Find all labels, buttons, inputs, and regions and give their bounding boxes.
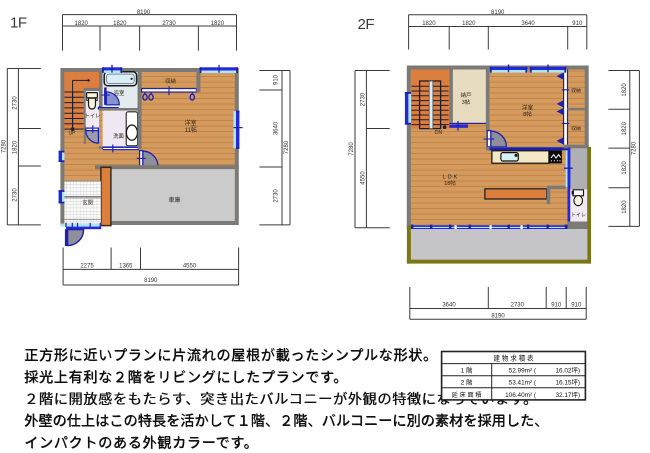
svg-text:16.15坪): 16.15坪) xyxy=(555,379,580,387)
svg-text:910: 910 xyxy=(551,303,562,309)
svg-text:2730: 2730 xyxy=(13,96,19,110)
svg-text:延 床 面 積: 延 床 面 積 xyxy=(452,391,482,399)
svg-text:洋室: 洋室 xyxy=(184,119,196,127)
svg-text:1820: 1820 xyxy=(622,200,628,214)
svg-text:1820: 1820 xyxy=(113,21,127,27)
svg-text:1820: 1820 xyxy=(75,21,89,27)
svg-text:2 階: 2 階 xyxy=(461,378,473,387)
svg-text:11帖: 11帖 xyxy=(185,126,197,134)
svg-text:インパクトのある外観カラーです。: インパクトのある外観カラーです。 xyxy=(24,435,258,452)
svg-text:106.40m² (: 106.40m² ( xyxy=(505,392,537,399)
svg-text:1820: 1820 xyxy=(622,83,628,97)
svg-text:8190: 8190 xyxy=(137,10,151,16)
svg-text:建 物 求 積 表: 建 物 求 積 表 xyxy=(493,354,534,363)
svg-text:収納: 収納 xyxy=(571,125,581,132)
svg-text:外壁の仕上はこの特長を活かして１階、２階、バルコニーに別の素: 外壁の仕上はこの特長を活かして１階、２階、バルコニーに別の素材を採用した、 xyxy=(24,414,548,430)
svg-text:1820: 1820 xyxy=(422,21,436,27)
svg-text:7280: 7280 xyxy=(631,141,637,155)
svg-text:DN: DN xyxy=(435,130,443,136)
svg-text:18帖: 18帖 xyxy=(444,179,456,187)
svg-text:玄関: 玄関 xyxy=(82,198,93,206)
svg-text:1820: 1820 xyxy=(622,161,628,175)
svg-text:2F: 2F xyxy=(358,16,375,33)
svg-text:7280: 7280 xyxy=(2,139,8,153)
svg-text:トイレ: トイレ xyxy=(85,114,101,120)
svg-text:4550: 4550 xyxy=(361,171,367,185)
svg-text:32.17坪): 32.17坪) xyxy=(555,391,580,399)
svg-text:3640: 3640 xyxy=(442,303,456,309)
svg-text:1820: 1820 xyxy=(13,140,19,154)
svg-text:UP: UP xyxy=(69,130,77,136)
svg-text:収納: 収納 xyxy=(165,77,176,85)
svg-text:2730: 2730 xyxy=(274,189,280,203)
svg-text:910: 910 xyxy=(274,74,280,85)
svg-text:L·D·K: L·D·K xyxy=(443,174,458,180)
svg-text:洗面: 洗面 xyxy=(113,132,124,140)
svg-text:1820: 1820 xyxy=(622,121,628,135)
svg-text:採光上有利な２階をリビングにしたプランです。: 採光上有利な２階をリビングにしたプランです。 xyxy=(24,370,348,386)
svg-text:3帖: 3帖 xyxy=(462,98,471,106)
svg-text:16.02坪): 16.02坪) xyxy=(555,367,580,375)
svg-text:2275: 2275 xyxy=(80,264,94,270)
svg-text:7280: 7280 xyxy=(284,140,290,154)
svg-text:トイレ: トイレ xyxy=(571,212,586,218)
svg-text:8帖: 8帖 xyxy=(523,110,532,118)
svg-text:8190: 8190 xyxy=(144,278,158,284)
svg-text:1 階: 1 階 xyxy=(461,366,473,375)
svg-text:1F: 1F xyxy=(10,15,27,32)
svg-text:収納: 収納 xyxy=(571,87,581,94)
svg-text:3640: 3640 xyxy=(521,21,535,27)
svg-text:8190: 8190 xyxy=(491,314,505,320)
svg-text:2730: 2730 xyxy=(361,92,367,106)
svg-text:910: 910 xyxy=(571,303,582,309)
svg-text:4550: 4550 xyxy=(183,264,197,270)
svg-text:車庫: 車庫 xyxy=(168,196,180,204)
svg-text:1820: 1820 xyxy=(462,21,476,27)
svg-text:正方形に近いプランに片流れの屋根が載ったシンプルな形状。: 正方形に近いプランに片流れの屋根が載ったシンプルな形状。 xyxy=(24,348,438,364)
svg-text:53.41m² (: 53.41m² ( xyxy=(509,380,537,387)
svg-text:2730: 2730 xyxy=(511,303,525,309)
svg-text:1365: 1365 xyxy=(119,264,133,270)
svg-text:52.99m² (: 52.99m² ( xyxy=(509,368,537,375)
svg-text:納戸: 納戸 xyxy=(461,91,472,99)
svg-text:7280: 7280 xyxy=(349,142,355,156)
svg-text:8190: 8190 xyxy=(491,10,505,16)
svg-text:910: 910 xyxy=(572,21,583,27)
svg-text:洋室: 洋室 xyxy=(522,103,534,111)
svg-text:2730: 2730 xyxy=(162,21,176,27)
svg-text:3640: 3640 xyxy=(274,121,280,135)
svg-text:2730: 2730 xyxy=(13,188,19,202)
svg-text:1820: 1820 xyxy=(211,21,225,27)
